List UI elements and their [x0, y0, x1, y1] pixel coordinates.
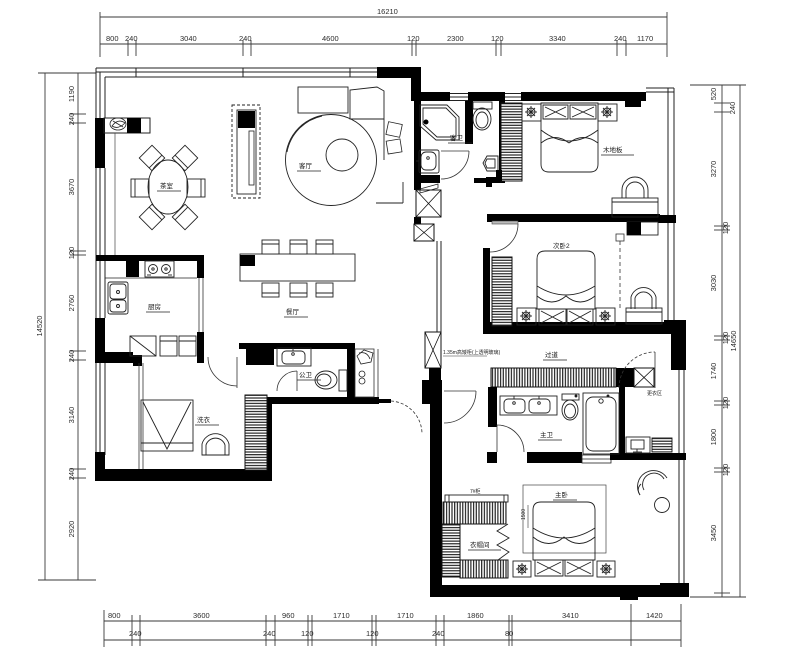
svg-text:3600: 3600 — [193, 611, 210, 620]
svg-text:公卫: 公卫 — [299, 371, 313, 379]
svg-text:客卫: 客卫 — [450, 133, 464, 142]
svg-text:1860: 1860 — [467, 611, 484, 620]
svg-text:4600: 4600 — [322, 34, 339, 43]
svg-text:主卧: 主卧 — [555, 490, 569, 499]
svg-text:3270: 3270 — [709, 161, 718, 178]
svg-text:2760: 2760 — [67, 295, 76, 312]
svg-text:240: 240 — [67, 113, 76, 126]
svg-text:1740: 1740 — [709, 363, 718, 380]
svg-text:800: 800 — [106, 34, 119, 43]
svg-text:过道: 过道 — [545, 350, 559, 359]
svg-text:240: 240 — [263, 629, 276, 638]
svg-text:3410: 3410 — [562, 611, 579, 620]
svg-text:14650: 14650 — [729, 331, 738, 352]
svg-text:厨房: 厨房 — [148, 302, 161, 311]
svg-text:3450: 3450 — [709, 525, 718, 542]
svg-text:2300: 2300 — [447, 34, 464, 43]
svg-text:1420: 1420 — [646, 611, 663, 620]
svg-text:7#柜: 7#柜 — [470, 488, 481, 495]
svg-text:3670: 3670 — [67, 179, 76, 196]
svg-text:520: 520 — [709, 88, 718, 101]
svg-text:240: 240 — [614, 34, 627, 43]
svg-text:木地板: 木地板 — [603, 145, 623, 154]
svg-text:3140: 3140 — [67, 407, 76, 424]
svg-text:1800: 1800 — [709, 429, 718, 446]
svg-text:更衣区: 更衣区 — [647, 390, 662, 397]
svg-text:1710: 1710 — [397, 611, 414, 620]
svg-text:120: 120 — [721, 222, 730, 235]
svg-text:960: 960 — [282, 611, 295, 620]
svg-text:120: 120 — [301, 629, 314, 638]
svg-text:餐厅: 餐厅 — [286, 307, 300, 316]
svg-text:240: 240 — [728, 102, 737, 115]
svg-text:3040: 3040 — [180, 34, 197, 43]
svg-text:240: 240 — [67, 468, 76, 481]
svg-text:衣帽间: 衣帽间 — [470, 540, 490, 549]
svg-text:次卧2: 次卧2 — [553, 241, 570, 250]
svg-text:80: 80 — [505, 629, 513, 638]
svg-text:3030: 3030 — [709, 275, 718, 292]
svg-text:1.35m高矮柜(上透明玻璃): 1.35m高矮柜(上透明玻璃) — [443, 349, 501, 356]
svg-text:1500: 1500 — [521, 509, 527, 520]
svg-text:16210: 16210 — [377, 7, 398, 16]
svg-text:240: 240 — [129, 629, 142, 638]
svg-text:120: 120 — [721, 397, 730, 410]
svg-text:茶室: 茶室 — [160, 181, 174, 190]
svg-text:1190: 1190 — [67, 86, 76, 102]
svg-text:240: 240 — [239, 34, 252, 43]
svg-text:1170: 1170 — [637, 34, 653, 43]
svg-text:120: 120 — [491, 34, 504, 43]
svg-text:客厅: 客厅 — [299, 161, 313, 170]
svg-text:800: 800 — [108, 611, 121, 620]
svg-text:2920: 2920 — [67, 521, 76, 538]
svg-text:1710: 1710 — [333, 611, 350, 620]
svg-text:240: 240 — [432, 629, 445, 638]
svg-text:120: 120 — [721, 464, 730, 477]
svg-text:14520: 14520 — [35, 316, 44, 337]
svg-text:3340: 3340 — [549, 34, 566, 43]
svg-text:240: 240 — [67, 350, 76, 363]
svg-text:洗衣: 洗衣 — [197, 415, 211, 424]
svg-text:主卫: 主卫 — [540, 430, 554, 439]
svg-text:120: 120 — [407, 34, 420, 43]
svg-text:240: 240 — [125, 34, 138, 43]
svg-text:120: 120 — [67, 247, 76, 260]
svg-text:120: 120 — [366, 629, 379, 638]
